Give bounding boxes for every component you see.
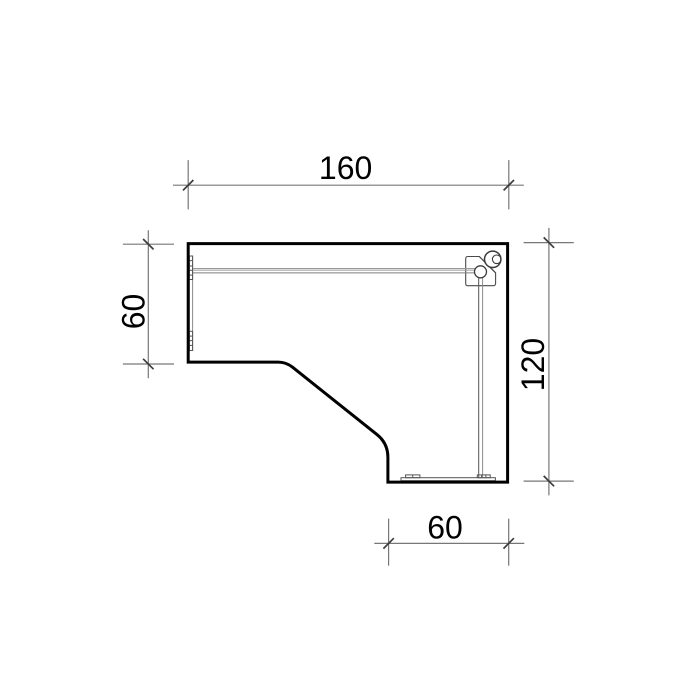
svg-text:60: 60 [427,510,463,546]
svg-text:160: 160 [319,150,372,186]
svg-text:60: 60 [116,294,152,330]
svg-text:120: 120 [515,338,551,391]
